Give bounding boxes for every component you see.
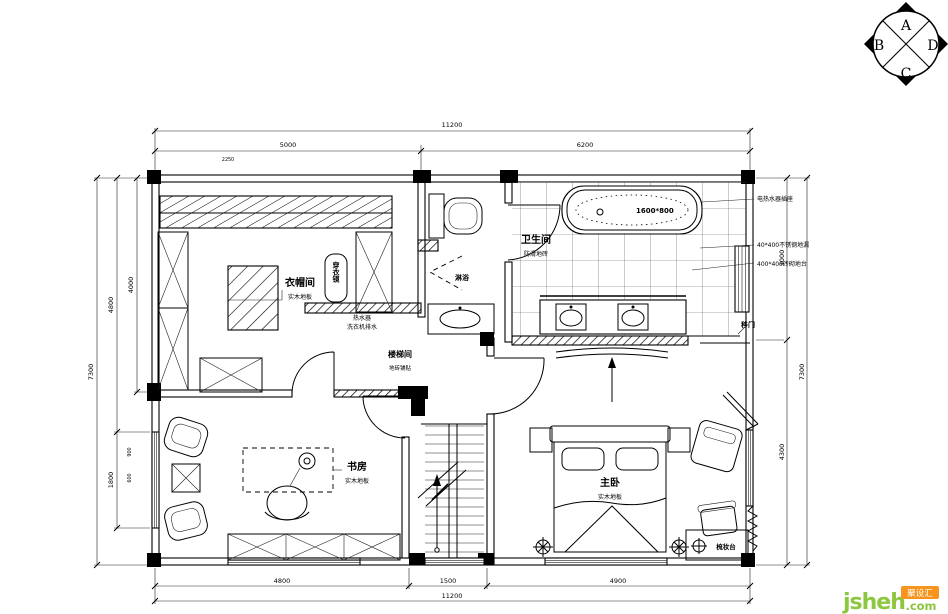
dim-top-seg1: 5000 [280,141,297,149]
note-drain: 40*400不锈钢地漏 [757,241,809,249]
room-label-stairwell: 楼梯间 [388,349,412,359]
dim-bottom-seg2: 1500 [440,577,457,585]
study: 书房 实木地板 [162,396,405,560]
dresser-light [691,538,707,554]
island-dresser [228,266,278,330]
downlight-left [533,537,553,557]
room-label-master: 主卧 [600,476,620,489]
room-finish-stairwell: 地砖铺贴 [389,364,412,372]
dim-left-mid: 4800 [107,297,115,314]
dim-left-tiny1: 900 [127,447,133,456]
compass-letter-right: D [927,38,938,54]
tv-stand [556,348,668,358]
stair-break-line [418,462,466,506]
dim-left-inner: 4000 [127,277,135,294]
floorplan-drawing: 11200 5000 6200 2250 4800 1500 4900 1120… [0,0,948,614]
bathroom: 1600*800 卫生间 防滑地砖 移门 电热水器插座 40*400不锈钢地漏 … [512,182,809,343]
floorplan-page: 11200 5000 6200 2250 4800 1500 4900 1120… [0,0,948,614]
dim-top-total: 11200 [442,121,463,129]
room-finish-cloakroom: 实木地板 [288,293,312,301]
sliding-door [688,336,750,343]
bedroom-door [490,358,544,414]
dim-closet-top: 2250 [222,157,234,163]
compass-letter-bottom: C [901,66,912,82]
stair-treads [425,426,484,552]
bedroom-armchair [689,419,743,473]
note-platform: 400*400砖砌地台 [757,260,807,268]
dim-bottom-total: 11200 [442,592,463,600]
armchair-bottom [162,500,209,543]
bathtub [562,186,702,234]
note-water-line1: 热水器 [353,314,371,322]
shower-spray [430,256,462,290]
pillow-right [616,448,658,470]
label-dresser: 梳妆台 [716,542,736,551]
toilet-bowl [444,198,482,234]
vanity-counter [540,300,686,334]
windows [152,430,753,565]
headboard [550,426,670,442]
room-label-study: 书房 [347,460,367,473]
note-heater: 电热水器插座 [757,195,793,203]
label-tub-size: 1600*800 [636,207,674,215]
compass-letter-top: A [900,18,912,34]
watermark-badge-text[interactable]: 聚设汇 [907,588,933,599]
dim-bottom-seg1: 4800 [274,577,291,585]
study-door [363,396,405,438]
room-label-bathroom: 卫生间 [521,233,551,246]
dim-left-window: 1800 [107,472,115,489]
armchair-top [162,415,211,460]
pillow-left [562,448,604,470]
note-water-line2: 洗衣机排水 [347,323,377,331]
cloakroom-door [292,352,334,394]
dim-left-tiny2: 600 [127,473,133,482]
label-sliding-door: 移门 [741,320,755,329]
compass-letter-left: B [874,38,884,54]
label-shower: 淋浴 [455,273,470,282]
room-finish-study: 实木地板 [345,477,369,485]
desk [243,448,333,492]
watermark-brand[interactable]: jsheh [842,590,905,614]
nightstand-left [530,428,552,452]
watermark-tld[interactable]: .com [905,599,936,613]
low-cabinets [228,534,400,560]
compass: A B C D [864,2,948,86]
dim-left-outer: 7300 [87,364,95,381]
nightstand-right [668,428,690,452]
dresser-stool [698,501,740,537]
cloakroom: 衣帽间 实木地板 穿衣镜 热水器 洗衣机排水 [158,196,392,394]
label-mirror: 穿衣镜 [332,261,341,284]
dim-top-seg2: 6200 [577,141,594,149]
toilet-tank [429,194,444,238]
dim-right-outer: 7300 [798,364,806,381]
blanket [554,498,666,552]
hanger-rail [160,196,392,228]
watermark[interactable]: jsheh 聚设汇 .com [842,586,939,614]
room-finish-master: 实木地板 [598,493,622,501]
room-label-cloakroom: 衣帽间 [285,276,315,289]
dim-right-bottom: 4300 [778,444,786,461]
desk-lamp [299,453,315,469]
dim-bottom-seg3: 4900 [610,577,627,585]
desk-chair [267,486,307,520]
master-bedroom: 梳妆台 主卧 实木地板 [490,348,757,560]
room-finish-bathroom: 防滑地砖 [524,250,548,258]
